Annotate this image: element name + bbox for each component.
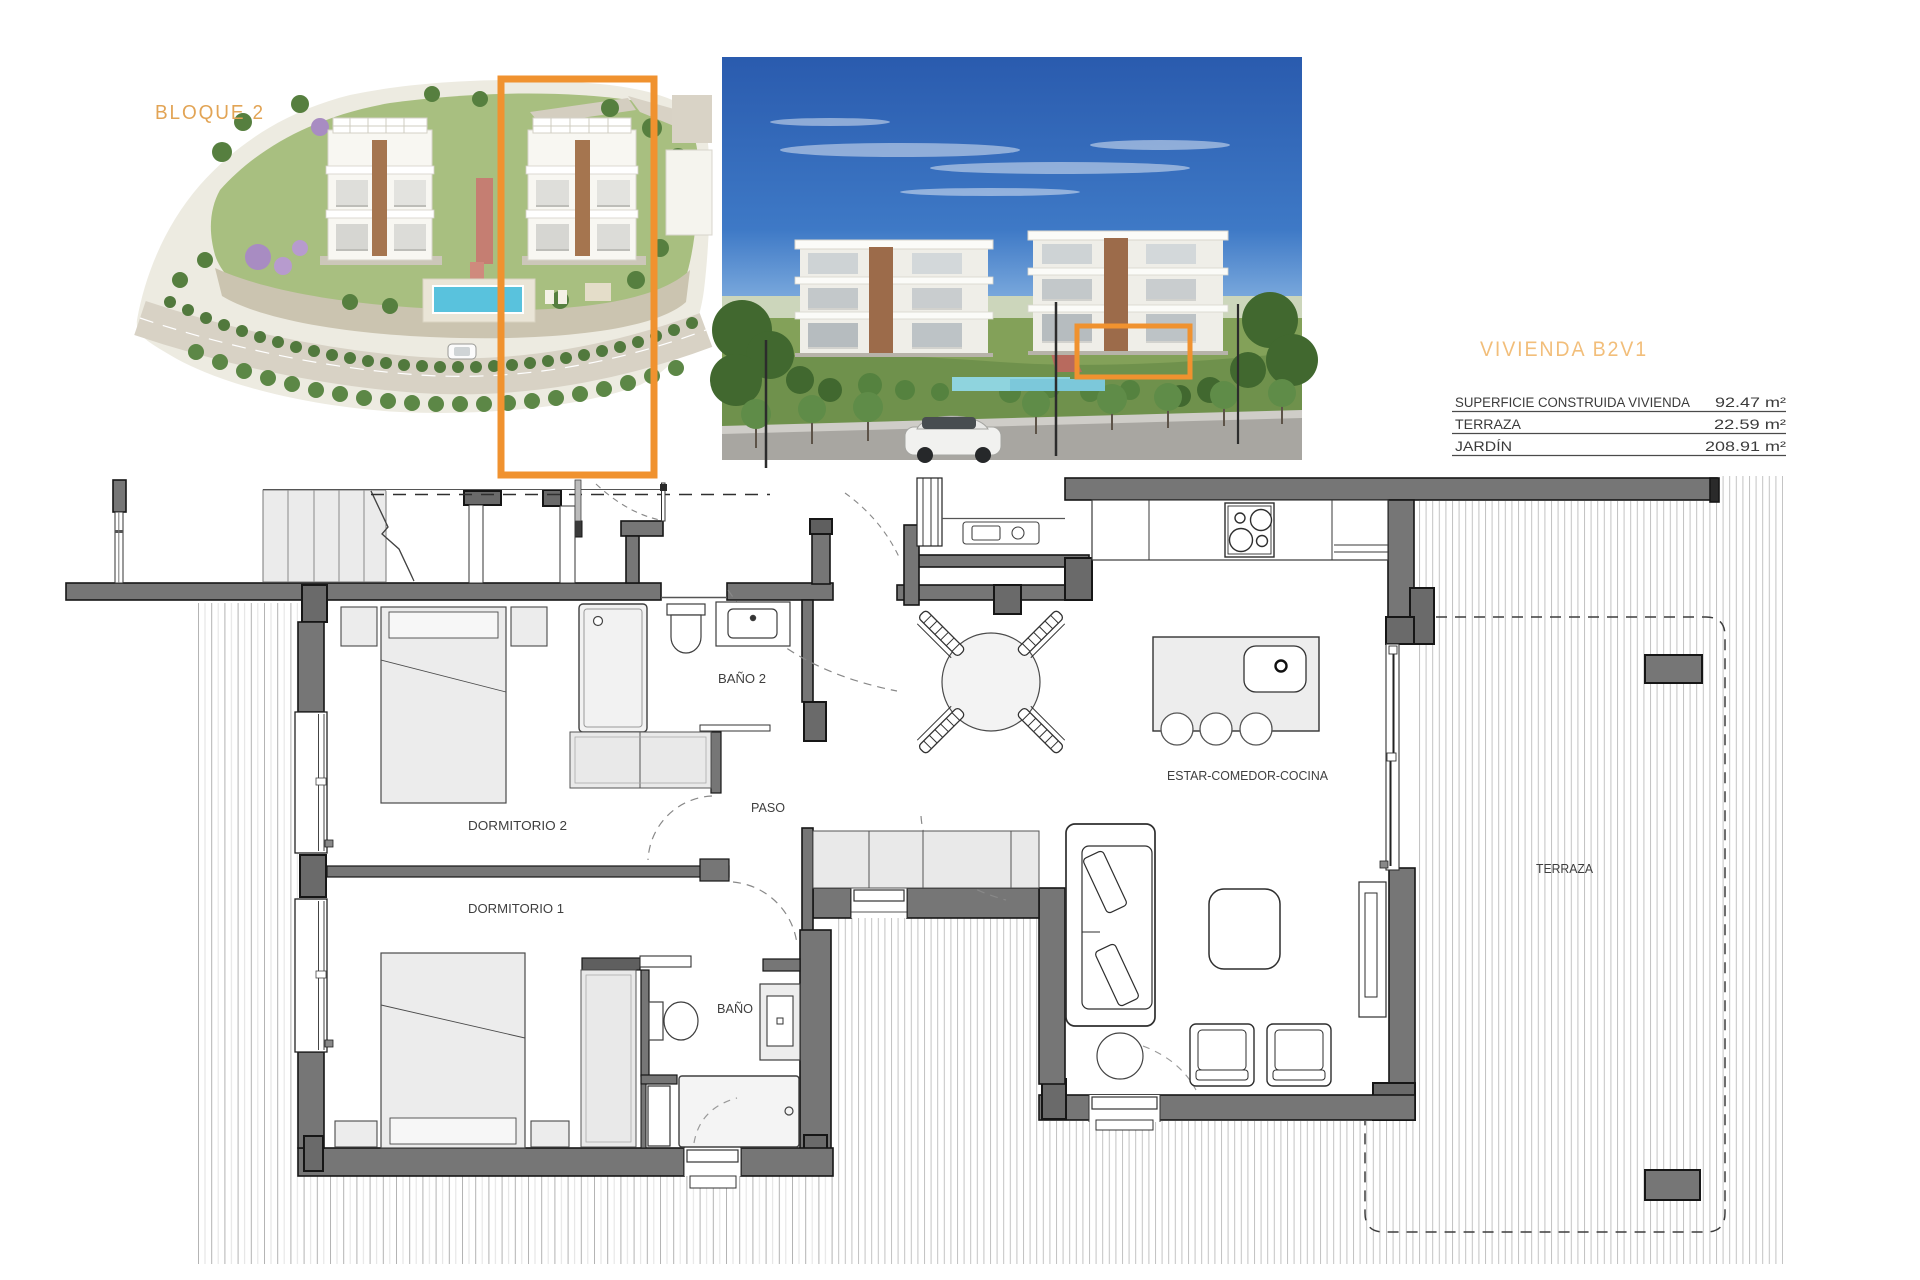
svg-text:22.59 m²: 22.59 m² (1714, 417, 1787, 432)
svg-text:DORMITORIO 1: DORMITORIO 1 (468, 901, 564, 916)
svg-text:TERRAZA: TERRAZA (1455, 417, 1521, 432)
svg-text:BLOQUE 2: BLOQUE 2 (155, 102, 265, 124)
svg-text:92.47 m²: 92.47 m² (1715, 395, 1787, 410)
svg-text:BAÑO 2: BAÑO 2 (718, 671, 766, 686)
svg-text:ESTAR-COMEDOR-COCINA: ESTAR-COMEDOR-COCINA (1167, 768, 1328, 783)
svg-text:DORMITORIO 2: DORMITORIO 2 (468, 818, 567, 833)
svg-text:SUPERFICIE CONSTRUIDA VIVIENDA: SUPERFICIE CONSTRUIDA VIVIENDA (1455, 395, 1690, 410)
svg-text:JARDÍN: JARDÍN (1455, 439, 1512, 454)
svg-text:VIVIENDA B2V1: VIVIENDA B2V1 (1480, 338, 1648, 361)
svg-text:208.91 m²: 208.91 m² (1705, 439, 1787, 454)
svg-text:BAÑO: BAÑO (717, 1001, 753, 1016)
svg-text:TERRAZA: TERRAZA (1536, 861, 1593, 876)
svg-text:PASO: PASO (751, 800, 785, 815)
